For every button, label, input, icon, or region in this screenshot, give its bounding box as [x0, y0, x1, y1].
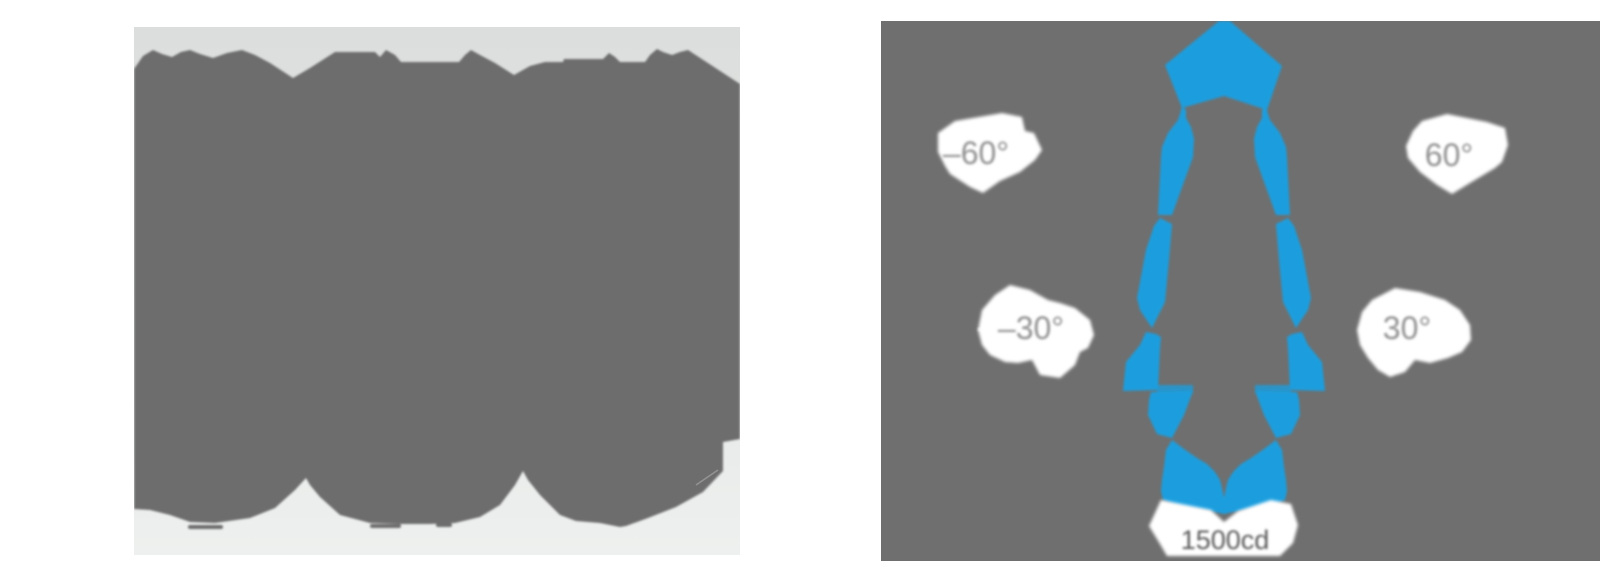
svg-text:60°: 60° — [1425, 137, 1473, 173]
svg-text:–60°: –60° — [943, 135, 1009, 171]
svg-text:1500cd: 1500cd — [1181, 525, 1270, 555]
svg-text:30°: 30° — [1383, 310, 1431, 346]
svg-text:–30°: –30° — [998, 310, 1064, 346]
